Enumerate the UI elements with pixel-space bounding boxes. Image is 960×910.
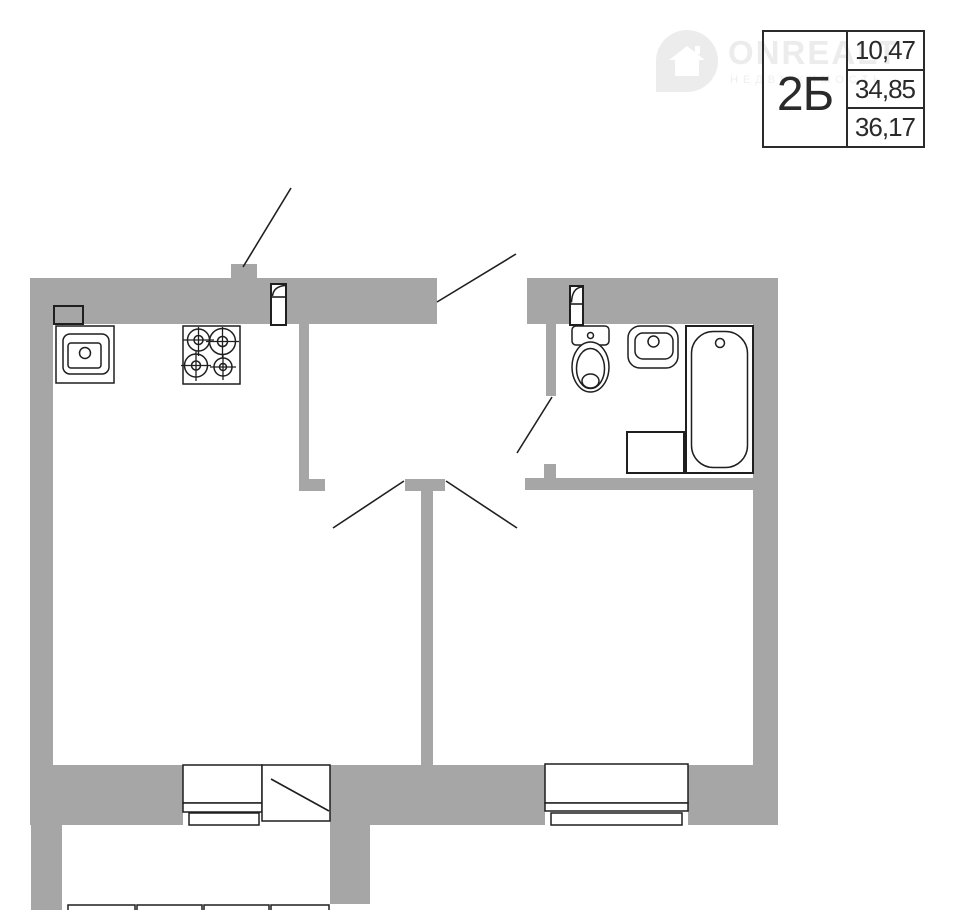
bathtub [686,326,753,473]
wall-bath-bottom [525,478,760,490]
gas-stove [181,326,240,384]
toilet-bowl-drain [582,374,599,388]
unit-info-table: 2Б 10,47 34,85 36,17 [762,30,925,148]
bathroom-door-swing-line [517,397,552,453]
window-frame-line [545,803,688,811]
living-room-door-swing-line [446,481,517,528]
railing-segment [204,905,269,910]
wall-door-symbol-bathroom [570,286,583,325]
wall-hall-t-bar [405,479,445,491]
wall-room-divider [421,491,433,765]
washbasin [628,326,678,368]
kitchen-window [183,765,262,825]
bathtub-drain [716,339,725,348]
wall-bottom-kitchen [30,765,183,825]
wall-right [753,278,778,825]
wall-bottom-right [688,765,778,825]
window-sill [189,813,259,825]
balcony-door [262,765,330,821]
window-sill [551,813,682,825]
wall-left [30,278,53,765]
vent-callout-line [243,188,291,267]
washing-machine [627,432,684,473]
balcony-railing [68,905,329,910]
living-room-window [545,764,688,825]
toilet-tank-button [588,333,594,339]
wall-door-symbol-kitchen [271,284,286,325]
window-frame [545,764,688,803]
entrance-door-swing-line [437,254,516,302]
unit-label: 2Б [764,32,848,146]
wall-bath-partition-stub [544,464,556,479]
wall-balcony-left [31,825,62,910]
railing-segment [68,905,135,910]
bathtub-inner [692,332,748,468]
vent-duct [54,306,83,324]
wall-kitchen-partition-foot [299,479,325,491]
kitchen-door-swing-line [333,481,404,528]
area-value-room: 10,47 [848,32,923,71]
window-frame-line [183,803,262,812]
wall-top-left [30,278,437,324]
wall-bath-partition [546,324,556,396]
floorplan-canvas: ONREALT НЕДВИЖИМОСТЬ 2Б 10,47 34,85 36,1… [0,0,960,910]
toilet [572,326,609,392]
house-pin-icon [656,30,718,92]
kitchen-sink-drain [80,348,91,359]
wall-top-right [527,278,778,324]
railing-segment [137,905,202,910]
washbasin-drain [648,336,659,347]
wall-bottom-middle [330,765,545,825]
unit-areas-column: 10,47 34,85 36,17 [848,32,923,146]
door-frame [271,284,286,325]
area-value-total: 36,17 [848,109,923,146]
wall-balcony-right [330,825,370,904]
window-frame [183,765,262,803]
railing-segment [271,905,329,910]
area-value-living: 34,85 [848,71,923,110]
door-frame [570,286,583,325]
wall-kitchen-partition [299,324,309,480]
kitchen-sink [56,326,114,383]
door-swing-callouts [243,188,552,528]
